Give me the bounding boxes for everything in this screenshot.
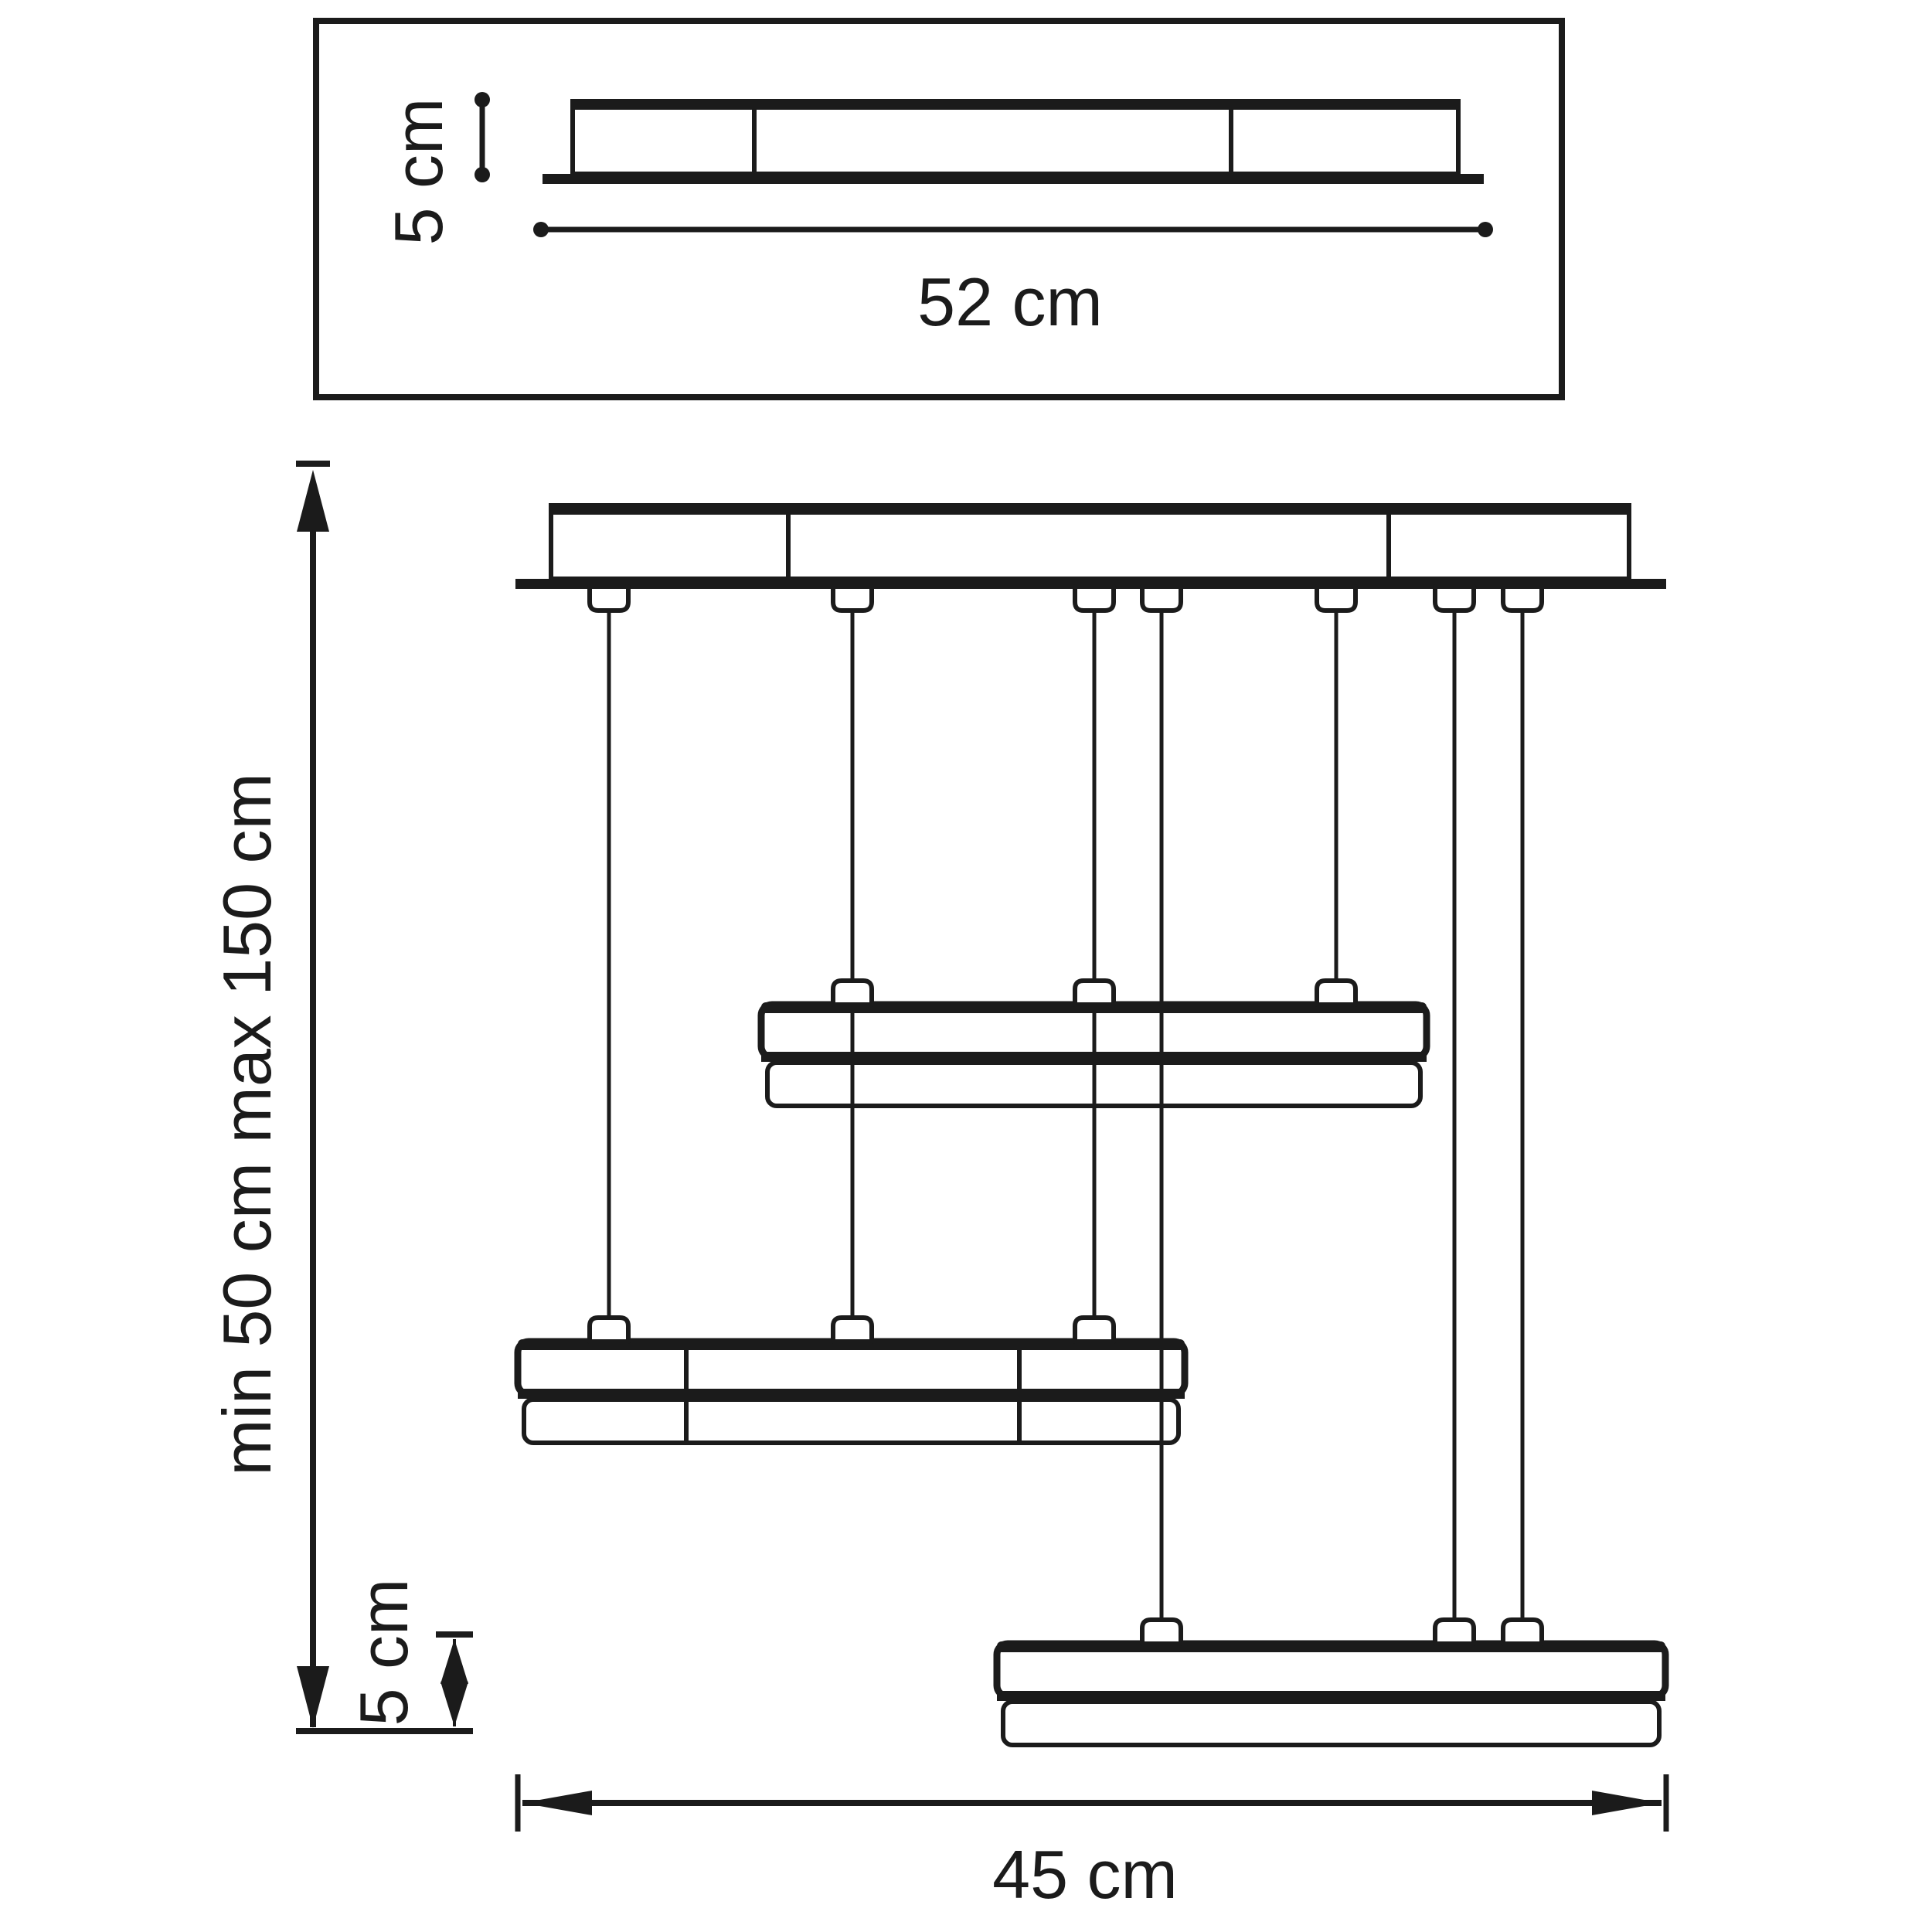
canopy-body — [551, 505, 1629, 579]
tier-height-label: 5 cm — [345, 1579, 422, 1726]
arrow-right-icon — [1592, 1791, 1662, 1815]
wire-grip — [590, 587, 628, 611]
canopy-width-label: 52 cm — [917, 264, 1103, 340]
dimension-dot — [474, 92, 490, 107]
wire-grip — [833, 981, 872, 1005]
canopy-elevation — [515, 504, 1666, 589]
wire-grip — [1317, 981, 1355, 1005]
canopy-width-dimension: 52 cm — [533, 222, 1493, 340]
suspension-wires — [609, 589, 1522, 1648]
dimension-dot — [533, 222, 549, 237]
dimension-dot — [1478, 222, 1493, 237]
suspension-height-dimension: min 50 cm max 150 cm — [209, 464, 473, 1731]
arrow-up-icon — [297, 470, 329, 532]
wire-grip — [1075, 1318, 1114, 1342]
wire-grip — [590, 1318, 628, 1342]
wire-grip — [833, 1318, 872, 1342]
wire-grip — [1503, 1620, 1542, 1644]
top-view: 5 cm 52 cm — [316, 21, 1562, 397]
tier-bottom-diffuser — [1003, 1702, 1659, 1745]
canopy-plan-base-plate — [543, 174, 1484, 184]
arrow-down-icon — [440, 1682, 468, 1726]
dimension-dot — [474, 167, 490, 182]
fixture-width-dimension: 45 cm — [518, 1774, 1666, 1913]
canopy-height-label: 5 cm — [380, 98, 457, 246]
wire-grip — [1075, 587, 1114, 611]
wire-grip — [1317, 587, 1355, 611]
canopy-plan-body — [573, 101, 1458, 174]
arrow-left-icon — [522, 1791, 592, 1815]
fixture-width-label: 45 cm — [992, 1836, 1178, 1913]
wire-grip — [1075, 981, 1114, 1005]
arrow-up-icon — [440, 1639, 468, 1684]
canopy-height-dimension: 5 cm — [380, 92, 490, 245]
tier-left-diffuser — [524, 1400, 1179, 1443]
wire-grip — [1435, 587, 1474, 611]
canopy-top-bar — [549, 504, 1631, 515]
wire-grip — [1142, 1620, 1181, 1644]
canopy-plan-top-bar — [570, 99, 1461, 110]
top-view-frame — [316, 21, 1562, 397]
pendant-lamp-dimension-drawing: 5 cm 52 cm — [0, 0, 1932, 1932]
drawing-canvas: 5 cm 52 cm — [0, 0, 1932, 1932]
wire-grip — [833, 587, 872, 611]
tier-bottom-mid-bar — [997, 1691, 1665, 1701]
wire-grip — [1435, 1620, 1474, 1644]
tier-bottom-top-bar — [997, 1641, 1665, 1652]
tier-left — [518, 1339, 1185, 1443]
tier-height-dimension: 5 cm — [345, 1579, 473, 1726]
suspension-range-label: min 50 cm max 150 cm — [209, 773, 285, 1476]
front-view: min 50 cm max 150 cm 5 cm 45 cm — [209, 464, 1666, 1913]
wire-grip — [1503, 587, 1542, 611]
tier-bottom — [997, 1641, 1665, 1745]
canopy-wire-grips — [590, 587, 1542, 611]
tier-left-mid-bar — [518, 1389, 1185, 1399]
wire-grip — [1142, 587, 1181, 611]
arrow-down-icon — [297, 1666, 329, 1728]
